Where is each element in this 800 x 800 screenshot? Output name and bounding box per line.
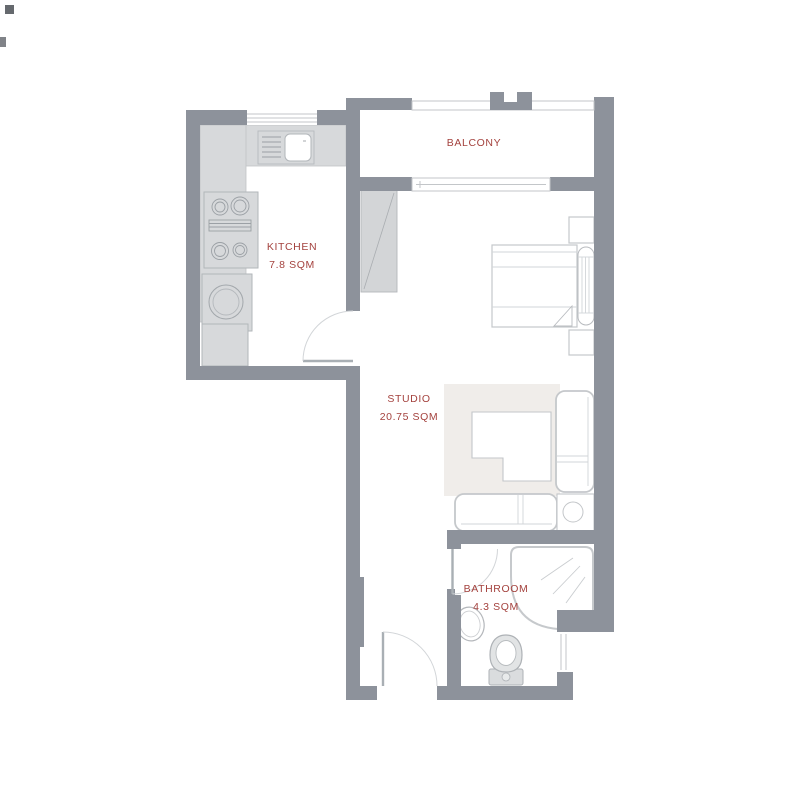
nightstand-icon: [569, 217, 594, 243]
wall-segment: [186, 366, 352, 380]
wall-segment: [594, 97, 614, 610]
bathroom-area-label: 4.3 SQM: [473, 601, 519, 613]
wall-segment: [447, 530, 461, 549]
balcony-railing-icon: [412, 92, 594, 110]
studio-label: STUDIO: [387, 393, 430, 405]
wall-segment: [346, 686, 377, 700]
kitchen-area-label: 7.8 SQM: [269, 259, 315, 271]
stove-icon: [204, 192, 258, 268]
wall-segment: [346, 98, 412, 110]
wall-segment: [317, 110, 346, 125]
wall-segment: [346, 98, 360, 311]
kitchen-door-swing-icon: [303, 311, 353, 361]
corner-artifact-marks: [0, 5, 14, 47]
sliding-door-icon: [412, 178, 550, 191]
entrance-door-swing-icon: [383, 632, 437, 686]
wall-segment: [346, 366, 360, 686]
pillow-icon: [578, 247, 594, 325]
bathroom-window-icon: [557, 632, 573, 672]
side-table-lamp-icon: [557, 494, 594, 531]
bathroom-label: BATHROOM: [464, 583, 529, 595]
floor-plan-drawing: BALCONY KITCHEN 7.8 SQM STUDIO 20.75 SQM…: [0, 0, 800, 800]
wall-segment: [186, 110, 200, 380]
studio-area-label: 20.75 SQM: [380, 411, 439, 423]
wall-segment: [447, 595, 461, 686]
balcony-label: BALCONY: [447, 137, 501, 149]
refrigerator-icon: [202, 324, 248, 366]
toilet-icon: [489, 635, 523, 685]
wall-segment: [346, 177, 412, 191]
floor-plan: BALCONY KITCHEN 7.8 SQM STUDIO 20.75 SQM…: [0, 0, 800, 800]
washing-machine-icon: [202, 274, 252, 331]
wall-segment: [447, 530, 594, 544]
kitchen-window-icon: [247, 110, 317, 125]
wall-pilaster: [360, 577, 364, 647]
wall-segment: [437, 686, 573, 700]
kitchen-label: KITCHEN: [267, 241, 317, 253]
wall-segment: [550, 177, 594, 191]
wall-segment: [557, 610, 614, 632]
wardrobe-icon: [361, 190, 397, 292]
nightstand-icon: [569, 330, 594, 355]
wall-segment: [186, 110, 247, 125]
double-bed-icon: [492, 245, 577, 327]
kitchen-sink-icon: [258, 131, 314, 164]
wall-segment: [557, 672, 573, 686]
